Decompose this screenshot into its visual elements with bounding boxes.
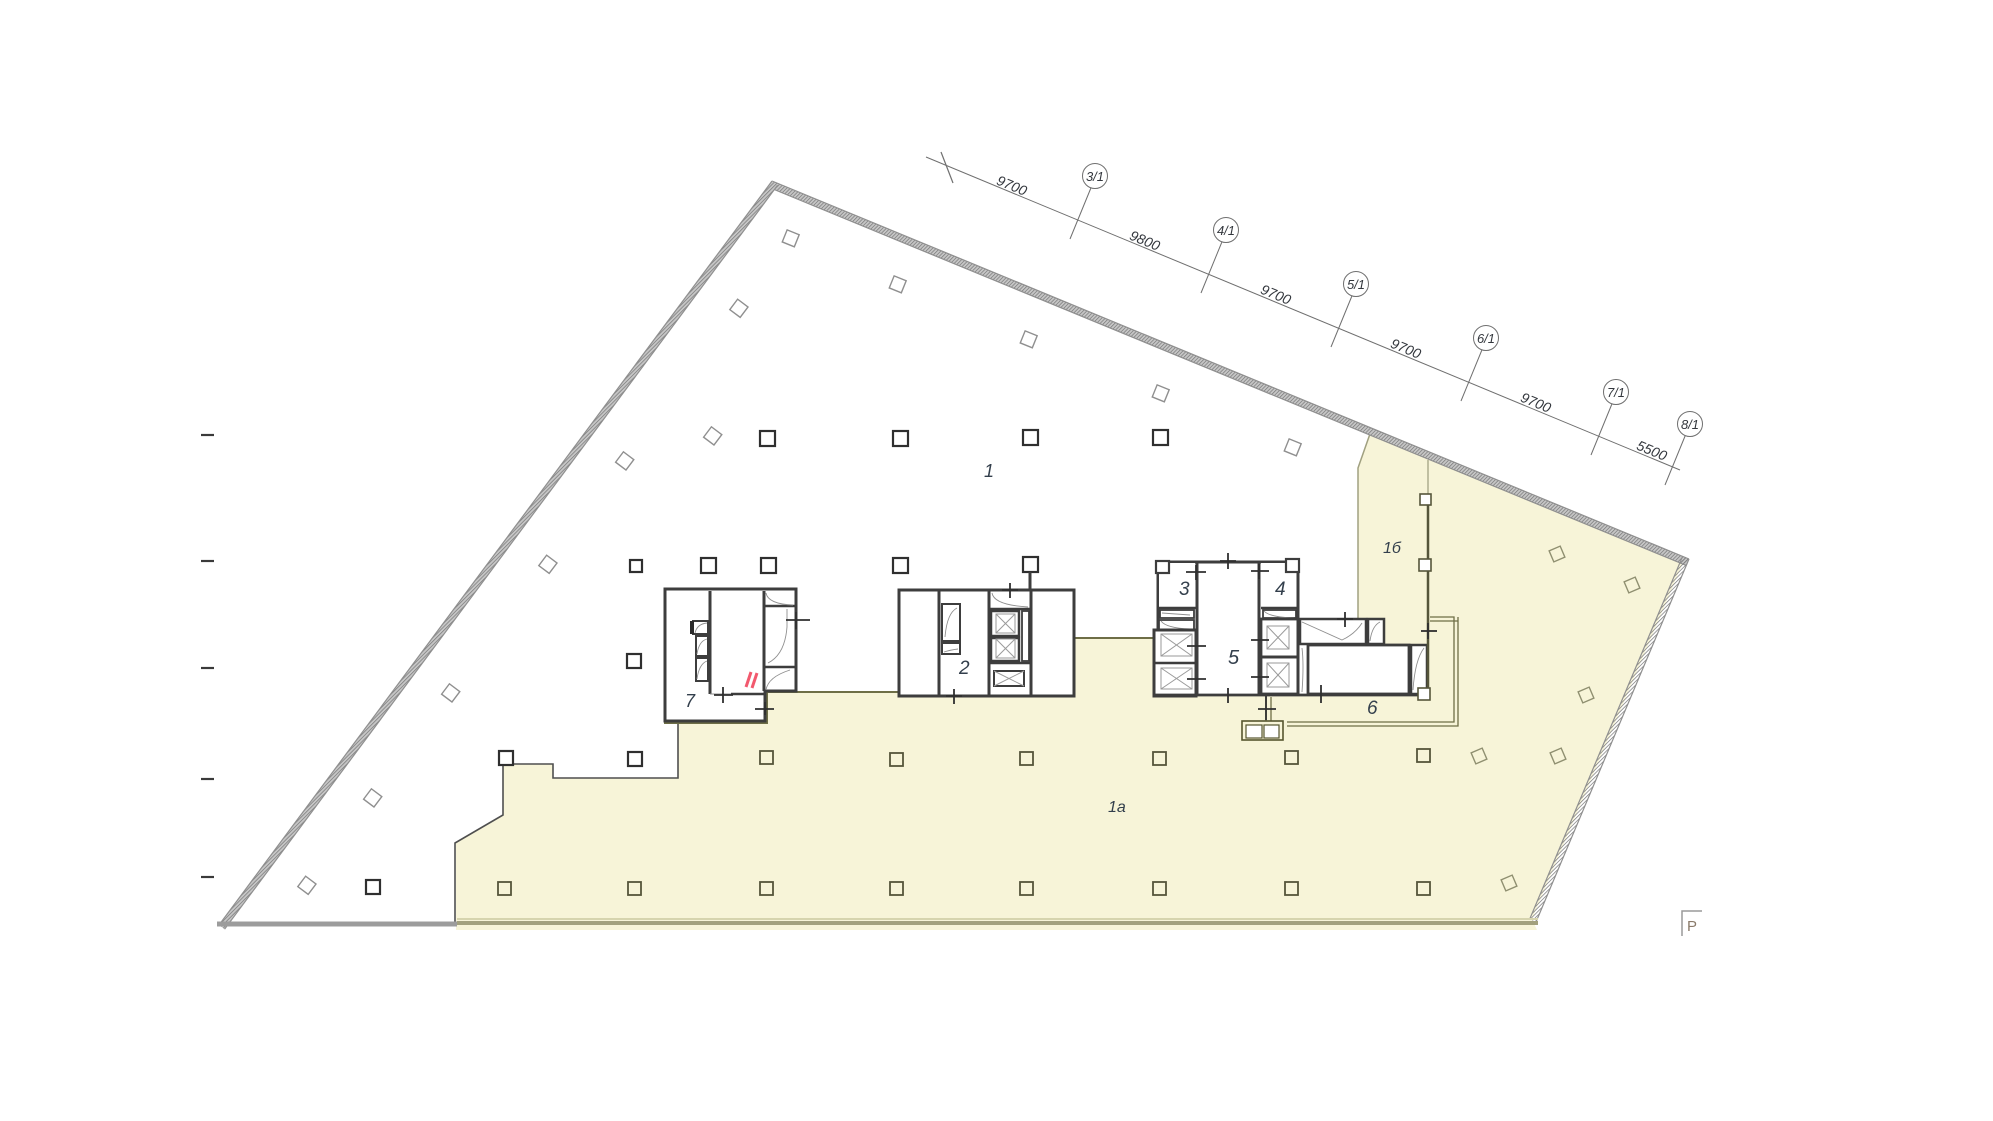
svg-text:7/1: 7/1: [1607, 385, 1625, 400]
svg-text:1б: 1б: [1383, 540, 1402, 557]
svg-text:7: 7: [685, 691, 696, 711]
svg-text:3: 3: [1179, 579, 1190, 600]
svg-text:4: 4: [1275, 579, 1286, 600]
svg-text:3/1: 3/1: [1086, 169, 1104, 184]
svg-text:6: 6: [1367, 698, 1378, 719]
svg-text:Р: Р: [1687, 918, 1697, 935]
svg-text:1а: 1а: [1108, 799, 1126, 816]
svg-text:4/1: 4/1: [1217, 223, 1235, 238]
svg-text:8/1: 8/1: [1681, 417, 1699, 432]
svg-text:6/1: 6/1: [1477, 331, 1495, 346]
svg-text:1: 1: [984, 461, 994, 481]
svg-text:5/1: 5/1: [1347, 277, 1365, 292]
svg-text:5: 5: [1228, 647, 1240, 669]
svg-text:2: 2: [958, 658, 970, 679]
